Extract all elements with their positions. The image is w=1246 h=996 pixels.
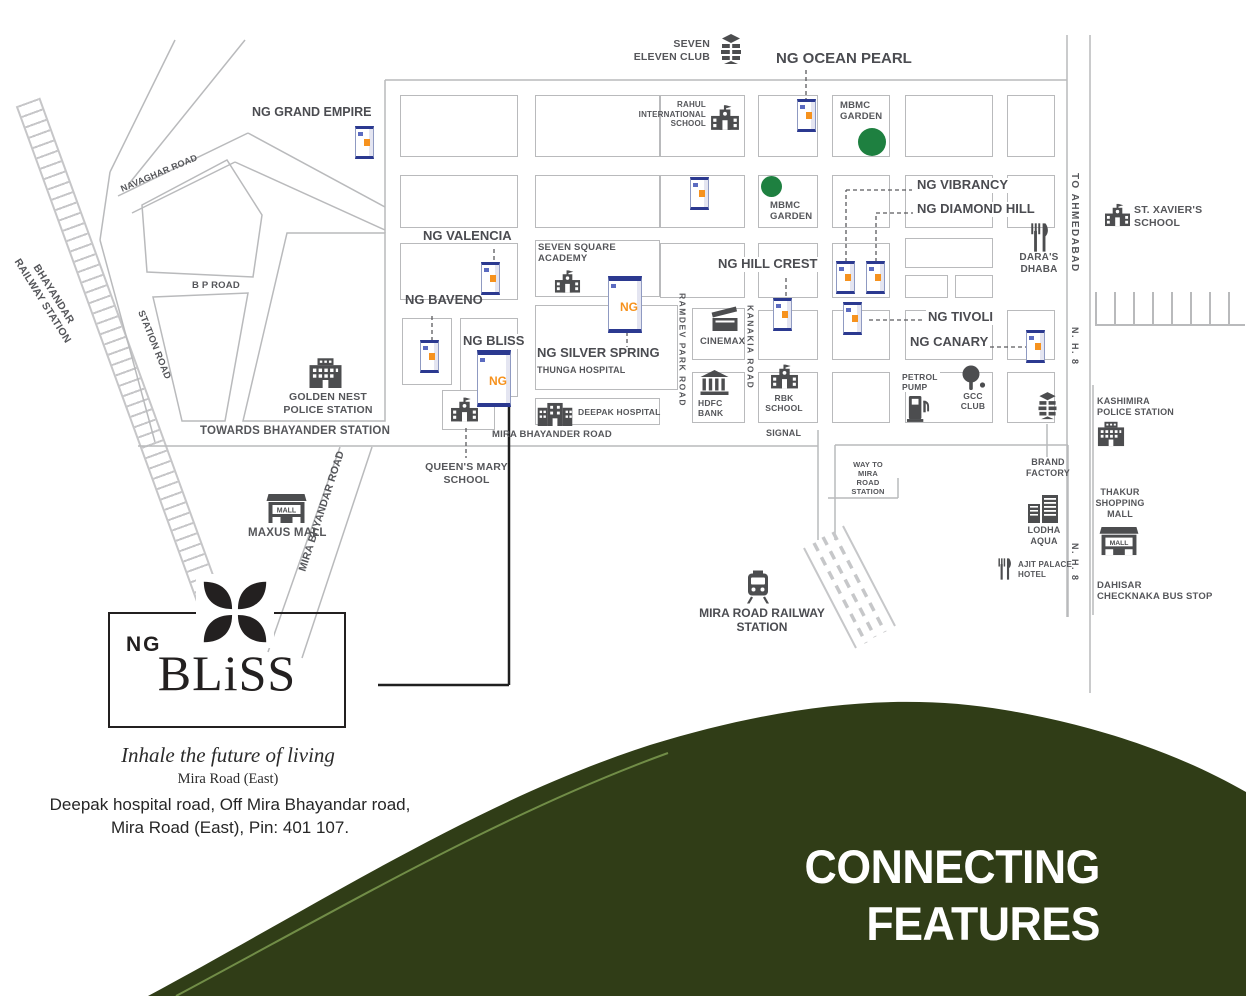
label-rbk-school: RBK SCHOOL (763, 393, 805, 413)
label-seven-square-academy: SEVEN SQUARE ACADEMY (538, 242, 616, 265)
kashimira-police-icon (1097, 419, 1125, 447)
label-ajit-palace-hotel: AJIT PALACE HOTEL (1018, 560, 1072, 579)
city-block (905, 95, 993, 157)
ng-tivoli-tower (843, 302, 862, 335)
svg-text:MALL: MALL (1110, 540, 1129, 547)
label-navaghar-road: NAVAGHAR ROAD (119, 152, 199, 194)
label-rahul-international-school: RAHUL INTERNATIONAL SCHOOL (638, 100, 706, 129)
cinemax-icon (709, 306, 742, 334)
ng-tower-text: NG (620, 301, 638, 313)
green-curve-highlight (176, 753, 668, 996)
hdfc-bank-icon (699, 370, 730, 396)
city-block (1007, 95, 1055, 157)
label-ng-vibrancy: NG VIBRANCY (915, 178, 1010, 193)
label-cinemax: CINEMAX (700, 336, 745, 347)
svg-text:MALL: MALL (277, 508, 297, 515)
seven-eleven-club-icon (716, 34, 746, 66)
ng-silver-spring-tower: NG (608, 276, 642, 333)
ajit-palace-icon (996, 557, 1014, 581)
city-block (535, 175, 660, 228)
ng-valencia-tower (481, 262, 500, 295)
label-kashimira-police-station: KASHIMIRA POLICE STATION (1097, 396, 1174, 418)
brand-factory-icon (1034, 390, 1061, 423)
label-seven-eleven-club: SEVEN ELEVEN CLUB (622, 38, 710, 63)
ng-hill-crest-tower (773, 298, 792, 331)
ng-grand-empire-tower (355, 126, 374, 159)
deepak-hospital-icon (536, 402, 574, 426)
label-signal: SIGNAL (766, 428, 801, 439)
ng-canary-tower (1026, 330, 1045, 363)
label-queens-mary-school: QUEEN'S MARY SCHOOL (424, 461, 509, 486)
label-mira-bhayander-road: MIRA BHAYANDER ROAD (492, 429, 612, 440)
label-daras-dhaba: DARA'S DHABA (1014, 252, 1064, 276)
city-block (400, 175, 518, 228)
bp-road-block (153, 293, 248, 421)
city-block (832, 175, 890, 228)
label-kanakia-road: KANAKIA ROAD (746, 305, 755, 389)
maxus-mall-icon: MALL (266, 492, 307, 525)
label-bp-road: B P ROAD (192, 280, 240, 291)
city-block (955, 275, 993, 298)
roadside-plots (1095, 292, 1245, 326)
label-ng-valencia: NG VALENCIA (423, 229, 512, 244)
ng-vibrancy-tower (836, 261, 855, 294)
mbmc-garden-circle-1 (858, 128, 886, 156)
label-ng-ocean-pearl: NG OCEAN PEARL (776, 50, 912, 67)
label-ng-tivoli: NG TIVOLI (926, 310, 995, 325)
project-location: Mira Road (East) (100, 771, 356, 788)
golden-nest-police-icon (308, 356, 343, 388)
label-towards-bhayander-station: TOWARDS BHAYANDER STATION (200, 425, 390, 439)
label-thakur-shopping-mall: THAKUR SHOPPING MALL (1094, 487, 1146, 519)
queens-mary-school-icon (450, 395, 479, 423)
logo-name: BLiSS (108, 648, 346, 698)
label-lodha-aqua: LODHA AQUA (1020, 525, 1068, 547)
label-mbmc-garden-2: MBMC GARDEN (770, 200, 812, 223)
label-ramdev-park-road: RAMDEV PARK ROAD (678, 293, 687, 407)
gcc-club-icon (960, 364, 987, 391)
rbk-school-icon (770, 362, 799, 390)
daras-dhaba-icon (1028, 222, 1052, 253)
tagline: Inhale the future of living (100, 743, 356, 768)
label-mbmc-garden-1: MBMC GARDEN (840, 100, 882, 123)
label-gcc-club: GCC CLUB (958, 391, 988, 411)
ng-tower-unlabeled (690, 177, 709, 210)
label-to-ahmedabad: TO AHMEDABAD (1069, 173, 1079, 273)
label-ng-bliss-map: NG BLISS (461, 334, 526, 349)
label-brand-factory: BRAND FACTORY (1022, 457, 1074, 479)
rahul-school-icon (710, 103, 740, 131)
label-way-to-mira-road-station: WAY TO MIRA ROAD STATION (842, 460, 894, 496)
mira-road-train-icon (744, 570, 772, 605)
label-nh8-upper: N. H. 8 (1070, 327, 1079, 366)
ng-tower-text: NG (489, 375, 507, 387)
mbmc-garden-circle-2 (761, 176, 782, 197)
label-ng-baveno: NG BAVENO (405, 293, 483, 308)
label-golden-nest-police-station: GOLDEN NEST POLICE STATION (283, 391, 373, 416)
railway-track (16, 98, 222, 607)
ng-baveno-tower (420, 340, 439, 373)
label-dahisar-checknaka-bus-stop: DAHISAR CHECKNAKA BUS STOP (1097, 580, 1213, 603)
st-xaviers-school-icon (1104, 202, 1131, 227)
ng-ocean-pearl-tower (797, 99, 816, 132)
ng-diamond-hill-tower (866, 261, 885, 294)
thakur-mall-icon: MALL (1099, 525, 1139, 557)
label-thunga-hospital: THUNGA HOSPITAL (537, 365, 626, 376)
ng-bliss-tower: NG (477, 350, 511, 407)
city-block (832, 372, 890, 423)
ng-bliss-flower-icon (196, 574, 274, 648)
city-block (905, 238, 993, 268)
label-ng-diamond-hill: NG DIAMOND HILL (915, 202, 1037, 217)
label-petrol-pump: PETROL PUMP (900, 372, 940, 392)
label-ng-grand-empire: NG GRAND EMPIRE (252, 105, 371, 119)
label-ng-hill-crest: NG HILL CREST (716, 257, 819, 272)
section-heading: CONNECTING FEATURES (805, 838, 1100, 953)
label-deepak-hospital: DEEPAK HOSPITAL (578, 407, 661, 417)
project-address: Deepak hospital road, Off Mira Bhayandar… (28, 794, 432, 840)
petrol-pump-icon (906, 393, 931, 422)
label-st-xaviers-school: ST. XAVIER'S SCHOOL (1134, 204, 1202, 229)
label-ng-canary: NG CANARY (908, 335, 990, 350)
seven-square-academy-icon (554, 268, 581, 294)
city-block (400, 95, 518, 157)
label-mira-road-railway-station: MIRA ROAD RAILWAY STATION (697, 607, 827, 635)
lodha-aqua-icon (1026, 492, 1060, 523)
label-hdfc-bank: HDFC BANK (698, 398, 723, 418)
location-map-page: NGNGMALLMALLSEVEN ELEVEN CLUBNG OCEAN PE… (0, 0, 1246, 996)
city-block (905, 275, 948, 298)
label-ng-silver-spring: NG SILVER SPRING (537, 346, 660, 361)
